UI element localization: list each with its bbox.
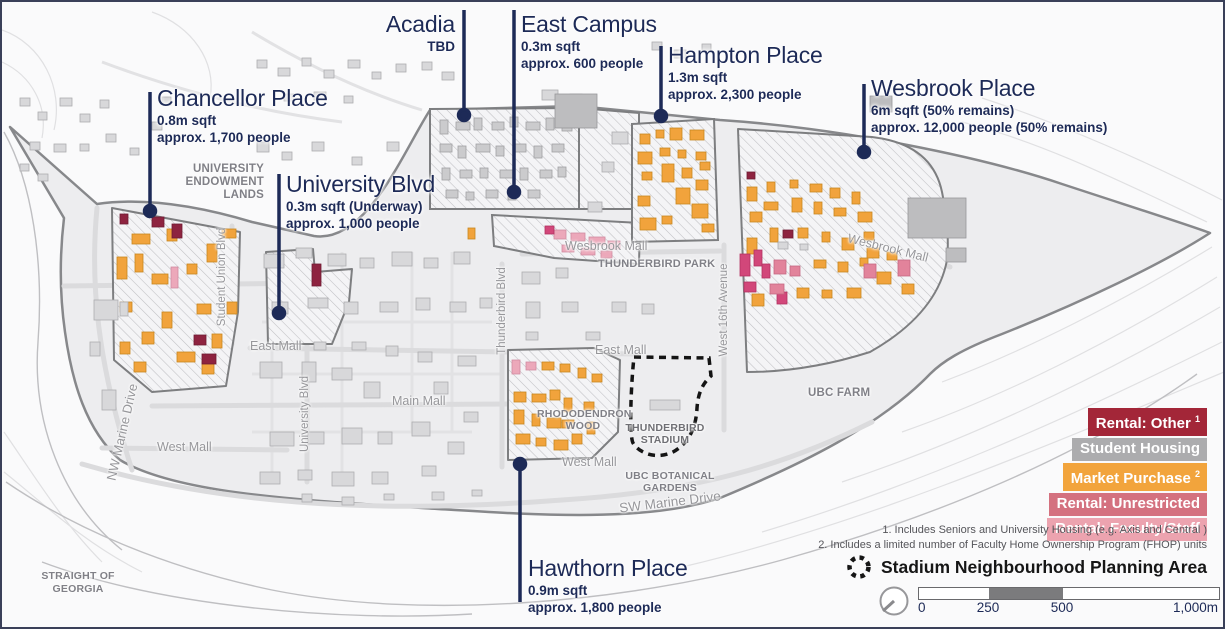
callout-east-campus: East Campus 0.3m sqft approx. 600 people	[521, 12, 657, 73]
callout-acadia: Acadia TBD	[386, 12, 455, 56]
legend-item-market-purchase: Market Purchase 2	[1063, 463, 1207, 491]
stadium-legend: Stadium Neighbourhood Planning Area	[845, 553, 1207, 581]
housing-type-legend: Rental: Other 1 Student Housing Market P…	[1047, 408, 1207, 541]
area-stat: TBD	[386, 39, 455, 56]
label-ubc-farm: UBC FARM	[808, 387, 870, 399]
legend-item-rental-other: Rental: Other 1	[1088, 408, 1207, 436]
neighbourhood-title: Acadia	[386, 12, 455, 36]
population-stat: approx. 1,800 people	[528, 600, 688, 617]
legend-item-rental-unrestricted: Rental: Unrestricted	[1049, 493, 1207, 516]
legend-label: Student Housing	[1080, 440, 1200, 457]
label-west-mall-right: West Mall	[562, 455, 617, 469]
area-hawthorn-place	[508, 348, 620, 460]
area-stat: 1.3m sqft	[668, 70, 823, 87]
area-stat: 6m sqft (50% remains)	[871, 103, 1107, 120]
callout-hampton-place: Hampton Place 1.3m sqft approx. 2,300 pe…	[668, 43, 823, 104]
neighbourhood-title: Chancellor Place	[157, 86, 328, 110]
label-wesbrook-mall-west: Wesbrook Mall	[565, 239, 647, 253]
label-east-mall-lower: East Mall	[595, 343, 646, 357]
campus-housing-map: Chancellor Place 0.8m sqft approx. 1,700…	[0, 0, 1225, 629]
legend-footnote-ref: 1	[1195, 414, 1200, 424]
callout-chancellor-place: Chancellor Place 0.8m sqft approx. 1,700…	[157, 86, 328, 147]
scale-bar-segment	[989, 588, 1063, 599]
legend-item-student-housing: Student Housing	[1072, 438, 1207, 461]
scale-tick-500: 500	[1051, 600, 1074, 615]
label-east-mall-upper: East Mall	[250, 339, 301, 353]
area-stat: 0.3m sqft	[521, 39, 657, 56]
neighbourhood-title: East Campus	[521, 12, 657, 36]
callout-wesbrook-place: Wesbrook Place 6m sqft (50% remains) app…	[871, 76, 1107, 137]
stadium-legend-label: Stadium Neighbourhood Planning Area	[881, 557, 1207, 578]
area-hampton-place	[632, 119, 718, 242]
label-west-16th-avenue: West 16th Avenue	[718, 264, 730, 357]
label-straight-of-georgia: STRAIGHT OF GEORGIA	[38, 570, 118, 595]
population-stat: approx. 12,000 people (50% remains)	[871, 120, 1107, 137]
area-stat: 0.3m sqft (Underway)	[286, 199, 435, 216]
neighbourhood-title: Hawthorn Place	[528, 556, 688, 580]
neighbourhood-title: Wesbrook Place	[871, 76, 1107, 100]
scale-tick-0: 0	[918, 600, 926, 615]
legend-footnote-2: 2. Includes a limited number of Faculty …	[818, 539, 1207, 551]
population-stat: approx. 2,300 people	[668, 87, 823, 104]
label-thunderbird-stadium: THUNDERBIRD STADIUM	[619, 422, 711, 446]
label-university-endowment-lands: UNIVERSITY ENDOWMENT LANDS	[172, 163, 264, 203]
legend-footnote-1: 1. Includes Seniors and University Housi…	[882, 524, 1207, 536]
compass-icon	[878, 585, 912, 619]
label-rhododendron-wood: RHODODENDRON WOOD	[537, 408, 629, 432]
population-stat: approx. 1,000 people	[286, 216, 435, 233]
callout-hawthorn-place: Hawthorn Place 0.9m sqft approx. 1,800 p…	[528, 556, 688, 617]
neighbourhood-title: Hampton Place	[668, 43, 823, 67]
legend-footnote-ref: 2	[1195, 469, 1200, 479]
callout-university-blvd: University Blvd 0.3m sqft (Underway) app…	[286, 172, 435, 233]
label-ubc-botanical-gardens: UBC BOTANICAL GARDENS	[620, 470, 720, 494]
label-university-blvd-road: University Blvd	[299, 376, 311, 452]
population-stat: approx. 600 people	[521, 56, 657, 73]
label-main-mall: Main Mall	[392, 394, 446, 408]
label-west-mall-left: West Mall	[157, 440, 212, 454]
neighbourhood-title: University Blvd	[286, 172, 435, 196]
label-thunderbird-blvd: Thunderbird Blvd	[496, 267, 508, 355]
scale-tick-250: 250	[977, 600, 1000, 615]
legend-label: Rental: Unrestricted	[1057, 495, 1200, 512]
scale-bar	[918, 587, 1220, 600]
scale-tick-1000: 1,000m	[1173, 600, 1218, 615]
population-stat: approx. 1,700 people	[157, 130, 328, 147]
area-stat: 0.8m sqft	[157, 113, 328, 130]
label-student-union-blvd: Student Union Blvd	[216, 228, 228, 326]
stadium-dashed-icon	[845, 553, 873, 581]
legend-label: Rental: Other	[1096, 415, 1191, 432]
area-stat: 0.9m sqft	[528, 583, 688, 600]
legend-label: Market Purchase	[1071, 470, 1191, 487]
label-thunderbird-park: THUNDERBIRD PARK	[598, 258, 715, 270]
